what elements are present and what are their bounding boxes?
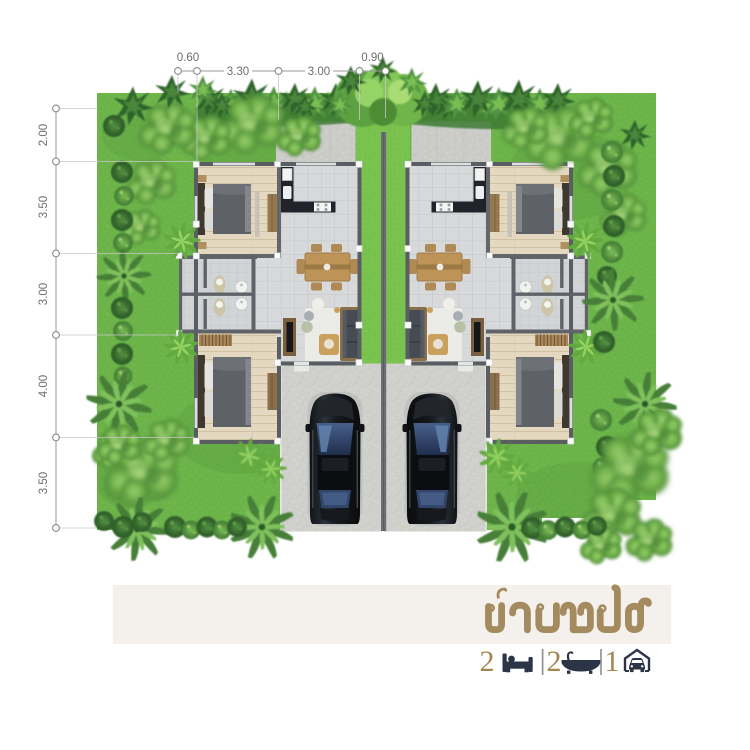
svg-text:3.50: 3.50 — [38, 472, 50, 494]
svg-text:4.00: 4.00 — [38, 375, 50, 397]
svg-text:2: 2 — [547, 645, 562, 678]
svg-text:0.90: 0.90 — [361, 52, 383, 64]
svg-text:2.00: 2.00 — [38, 124, 50, 146]
svg-text:3.00: 3.00 — [38, 283, 50, 305]
svg-text:2: 2 — [480, 645, 495, 678]
svg-text:3.50: 3.50 — [38, 196, 50, 218]
svg-text:1: 1 — [605, 645, 620, 678]
svg-text:0.60: 0.60 — [177, 52, 199, 64]
svg-text:3.00: 3.00 — [308, 66, 330, 78]
svg-text:3.30: 3.30 — [227, 66, 249, 78]
